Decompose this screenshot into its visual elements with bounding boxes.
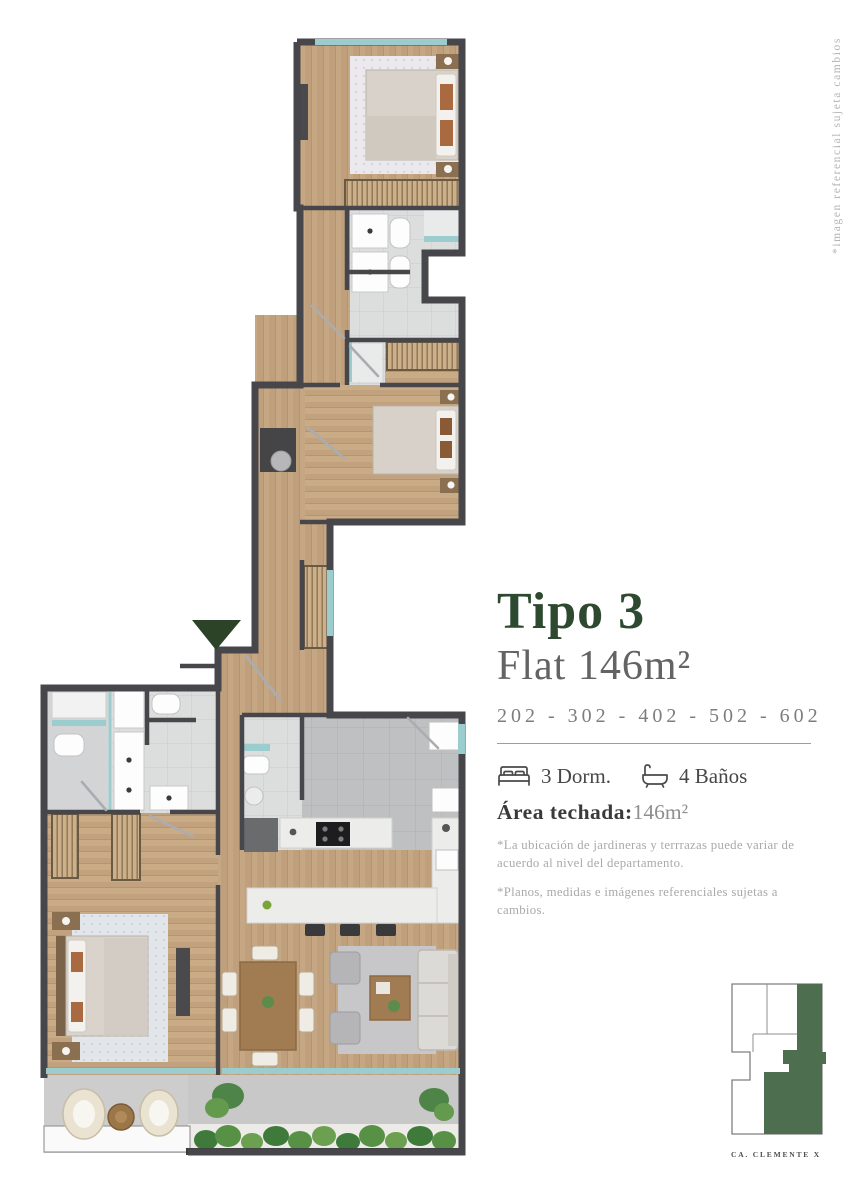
keyplan-caption: CA. CLEMENTE X [718,1150,834,1159]
bed-icon [497,764,531,788]
unit-numbers: 202 - 302 - 402 - 502 - 602 [497,705,819,728]
bathrooms-feature: 4 Baños [641,763,747,789]
disclaimer-1: *La ubicación de jardineras y terrrazas … [497,837,829,872]
hall-closet [304,566,330,648]
features-row: 3 Dorm. 4 Baños [497,763,819,789]
bathrooms-label: 4 Baños [679,764,747,789]
covered-area-label: Área techada: [497,800,633,824]
bath-icon [641,763,669,789]
bedrooms-label: 3 Dorm. [541,764,611,789]
bedrooms-feature: 3 Dorm. [497,764,611,789]
covered-area-row: Área techada:146m² [497,800,819,825]
entrance-arrow-icon [192,620,241,650]
image-reference-note: *imagen referencial sujeta cambios [831,24,843,254]
unit-info-panel: Tipo 3 Flat 146m² 202 - 302 - 402 - 502 … [497,586,819,920]
divider-line [497,743,811,744]
unit-type-title: Tipo 3 [497,586,819,638]
disclaimer-2: *Planos, medidas e imágenes referenciale… [497,884,829,919]
covered-area-value: 146m² [633,800,688,824]
unit-subtitle: Flat 146m² [497,644,819,688]
keyplan-image [726,976,826,1140]
